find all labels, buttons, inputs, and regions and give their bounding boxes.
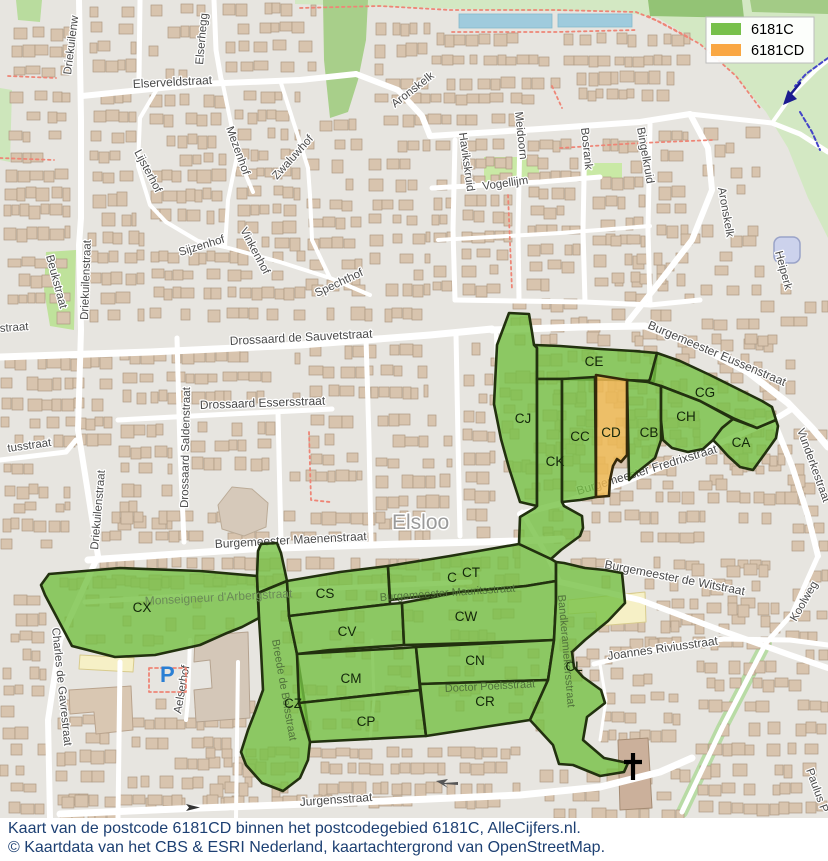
svg-text:Elsloo: Elsloo [392,511,449,534]
svg-text:CH: CH [676,409,696,424]
svg-text:CS: CS [316,586,335,601]
svg-text:CB: CB [640,425,659,440]
svg-text:CA: CA [732,435,751,450]
svg-text:CW: CW [455,609,478,624]
svg-text:CJ: CJ [515,411,532,426]
svg-text:6181CD: 6181CD [751,43,804,59]
svg-text:CG: CG [695,385,715,400]
svg-text:CL: CL [565,659,583,674]
svg-text:straat: straat [0,321,30,335]
svg-text:Kaart van de postcode 6181CD b: Kaart van de postcode 6181CD binnen het … [8,820,581,837]
svg-text:C: C [447,570,457,585]
svg-text:CE: CE [585,354,604,369]
svg-text:CD: CD [601,425,621,440]
svg-text:CP: CP [357,714,376,729]
svg-text:CZ: CZ [284,696,302,711]
svg-text:6181C: 6181C [751,22,794,38]
svg-text:CV: CV [338,624,357,639]
svg-text:© Kaartdata van het CBS & ESRI: © Kaartdata van het CBS & ESRI Nederland… [8,839,605,856]
svg-text:P: P [160,662,175,687]
svg-text:CK: CK [546,454,565,469]
svg-text:CT: CT [462,565,480,580]
svg-text:CR: CR [475,694,495,709]
svg-text:CN: CN [465,653,485,668]
svg-text:Drossaard Saldenstraat: Drossaard Saldenstraat [179,386,193,508]
svg-text:CM: CM [341,671,362,686]
svg-text:CC: CC [570,429,590,444]
svg-text:CX: CX [133,600,152,615]
